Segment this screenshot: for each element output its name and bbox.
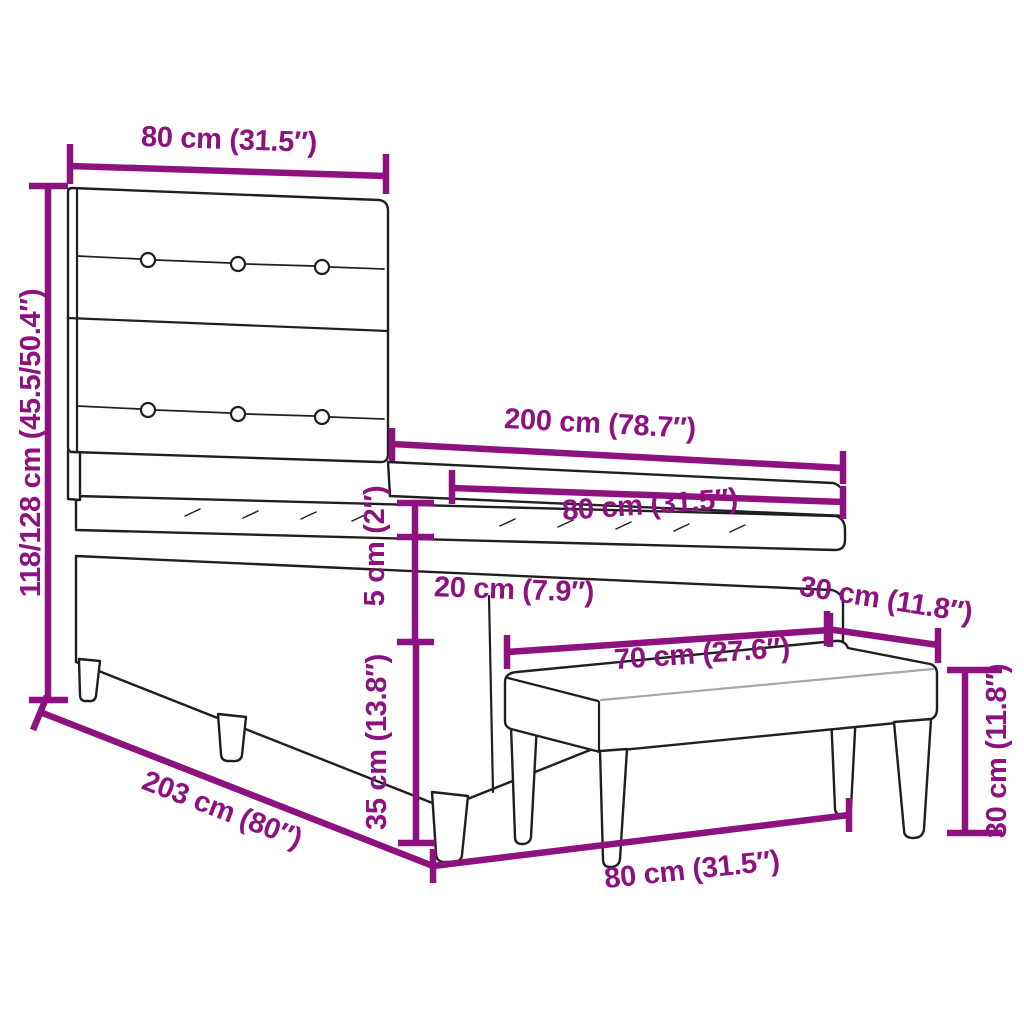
furniture-dimension-diagram: 80 cm (31.5″) 118/128 cm (45.5/50.4″) 20… <box>0 0 1024 1024</box>
bed-leg <box>218 714 246 761</box>
bench-leg-front-left <box>600 749 627 867</box>
dimension-headboard-width: 80 cm (31.5″) <box>70 121 386 194</box>
headboard <box>68 188 388 500</box>
headboard-button <box>141 403 155 417</box>
bed-leg <box>79 659 100 701</box>
headboard-button <box>315 410 329 424</box>
dimension-label: 5 cm (2″) <box>359 486 391 607</box>
bench-leg-front-right <box>894 719 931 838</box>
dimension-label: 80 cm (31.5″) <box>603 845 781 895</box>
dimension-line <box>70 166 386 176</box>
dimension-label: 30 cm (11.8″) <box>981 664 1013 838</box>
headboard-post <box>68 450 80 500</box>
dimension-bench-height: 30 cm (11.8″) <box>947 664 1013 838</box>
bed-drawing <box>68 188 859 862</box>
dimension-label: 200 cm (78.7″) <box>503 403 696 445</box>
dimension-label: 35 cm (13.8″) <box>361 654 393 830</box>
dimension-label: 80 cm (31.5″) <box>140 121 317 159</box>
bed-leg <box>432 792 468 862</box>
headboard-button <box>315 260 329 274</box>
headboard-button <box>141 253 155 267</box>
dimension-label: 118/128 cm (45.5/50.4″) <box>15 289 47 598</box>
dimension-label: 20 cm (7.9″) <box>433 571 594 609</box>
bench-leg-back-left <box>511 724 537 844</box>
diagram-page: 80 cm (31.5″) 118/128 cm (45.5/50.4″) 20… <box>0 0 1024 1024</box>
headboard-button <box>231 407 245 421</box>
dimension-label: 203 cm (80″) <box>138 765 307 855</box>
dimension-bench-length: 80 cm (31.5″) <box>433 798 849 895</box>
dimension-bed-height: 118/128 cm (45.5/50.4″) <box>15 186 68 700</box>
headboard-button <box>231 257 245 271</box>
